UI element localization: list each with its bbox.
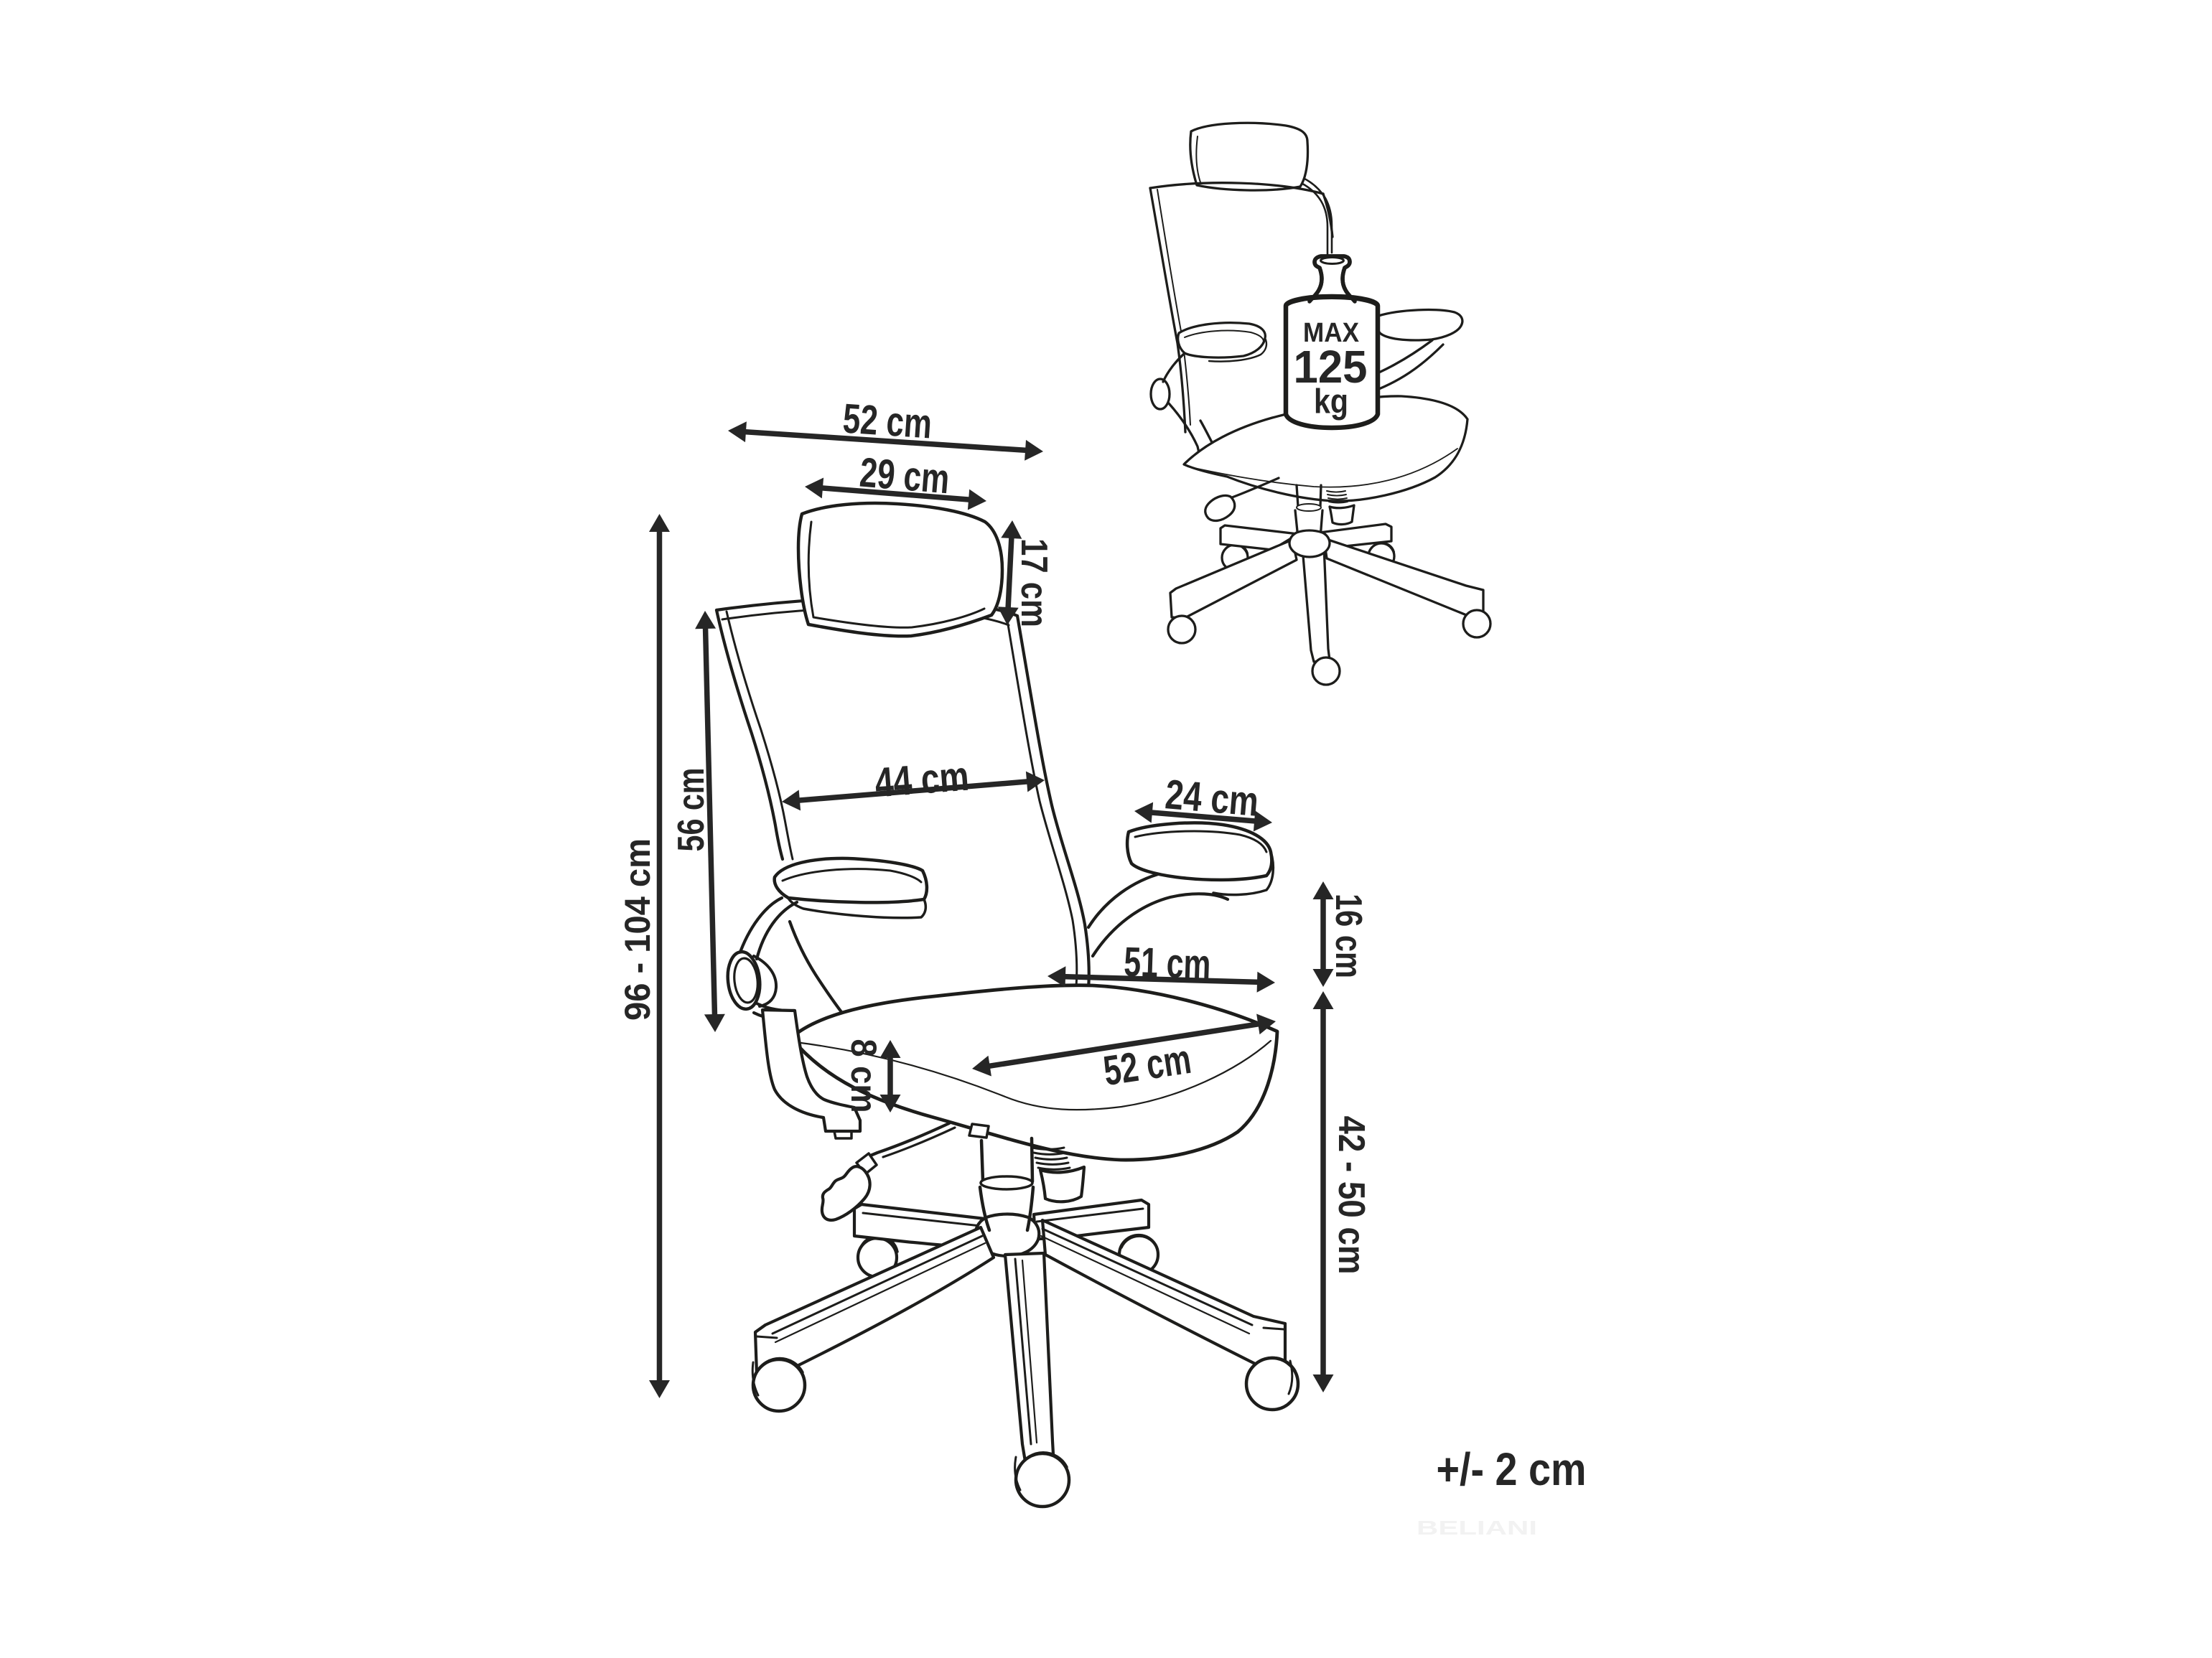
svg-text:42 - 50 cm: 42 - 50 cm — [1330, 1116, 1372, 1275]
svg-text:kg: kg — [1314, 383, 1348, 421]
svg-text:BELIANI: BELIANI — [1417, 1517, 1537, 1539]
svg-text:44 cm: 44 cm — [873, 753, 971, 807]
svg-text:52 cm: 52 cm — [841, 395, 933, 447]
svg-text:51 cm: 51 cm — [1124, 939, 1212, 988]
svg-text:56 cm: 56 cm — [671, 768, 712, 852]
svg-text:96 - 104 cm: 96 - 104 cm — [617, 838, 658, 1021]
svg-text:16 cm: 16 cm — [1327, 894, 1369, 978]
svg-text:17 cm: 17 cm — [1013, 538, 1055, 627]
svg-text:8 cm: 8 cm — [844, 1039, 884, 1113]
svg-text:24 cm: 24 cm — [1164, 771, 1261, 825]
svg-text:+/- 2 cm: +/- 2 cm — [1437, 1443, 1587, 1495]
svg-text:29 cm: 29 cm — [858, 449, 951, 503]
